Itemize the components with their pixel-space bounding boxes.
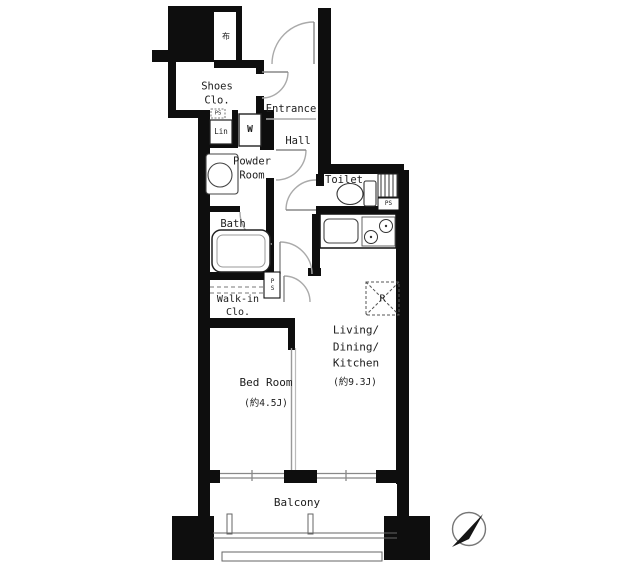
stove-burner-1-dot (370, 236, 372, 238)
wall-pillar-top-left (168, 6, 214, 62)
wall-powder-bath (206, 206, 240, 212)
wall-hall-left-mid (266, 178, 274, 210)
wall-partition-top (288, 318, 295, 350)
sink-basin (208, 163, 232, 187)
wall-pillar-bottom-left (172, 516, 214, 560)
washer-label: W (247, 124, 253, 136)
hall-label: Hall (285, 135, 310, 149)
wall-toilet-top (324, 164, 404, 174)
walkin-closet-label: Walk-in Clo. (217, 293, 259, 319)
bedroom-size-label: (約4.5J) (244, 398, 288, 410)
wall-bottom-right (376, 470, 409, 483)
wall-stub-left (152, 50, 168, 62)
wall-bath-bottom (206, 272, 268, 280)
wall-entrance-right (318, 8, 331, 174)
kitchen-sink (324, 219, 358, 243)
entrance-door-arc (272, 22, 314, 64)
ldk-size-label: (約9.3J) (333, 377, 377, 389)
balcony-post-1 (227, 514, 232, 534)
bath-label: Bath (220, 218, 245, 232)
shoes-closet-label: Shoes Clo. (201, 80, 233, 107)
linen-label: Lin (214, 127, 228, 137)
balcony-post-2 (308, 514, 313, 534)
wall-bedroom-top (206, 318, 294, 328)
ps-hall-label: PS (269, 278, 275, 292)
balcony-railing (222, 552, 382, 561)
north-arrow-icon (452, 513, 486, 548)
bathtub (212, 230, 270, 272)
powder-room-door-arc (276, 150, 306, 180)
wall-right-lower (397, 482, 409, 518)
ldk-label: Living/ Dining/ Kitchen (333, 322, 379, 372)
refrigerator-label: R (379, 293, 385, 306)
ps-entry-label: PS (215, 110, 222, 117)
shoes-closet-door-arc (262, 72, 288, 98)
wall-niche-right (236, 8, 242, 66)
storage-niche-label: 布 (222, 32, 230, 42)
toilet-door-arc (286, 180, 316, 210)
wall-hall-bottom-right (308, 268, 321, 276)
duct-hatch (378, 174, 398, 197)
toilet-tank (364, 181, 376, 206)
floor-plan: 布 Shoes Clo. Entrance W Lin PS Powder Ro… (0, 0, 640, 569)
wall-left-upper (168, 60, 176, 118)
ps-toilet-label: PS (385, 200, 392, 208)
entrance-label: Entrance (266, 103, 317, 117)
walls (152, 6, 430, 560)
wall-bottom-left (198, 470, 220, 483)
wall-right-main (396, 170, 409, 484)
wall-bottom-mid (284, 470, 317, 483)
ldk-door-arc (280, 242, 312, 274)
balcony-structure (213, 514, 397, 561)
stove-burner-2-dot (385, 225, 387, 227)
wall-toilet-left (316, 174, 324, 186)
floor-plan-drawing (0, 0, 640, 569)
wall-kitchen-left (312, 214, 320, 276)
wall-left-lower (198, 482, 210, 518)
toilet-label: Toilet (325, 174, 363, 188)
bedroom-label: Bed Room (240, 376, 293, 390)
powder-room-label: Powder Room (233, 155, 271, 182)
walkin-closet-door-arc (284, 276, 310, 302)
balcony-label: Balcony (274, 496, 320, 510)
